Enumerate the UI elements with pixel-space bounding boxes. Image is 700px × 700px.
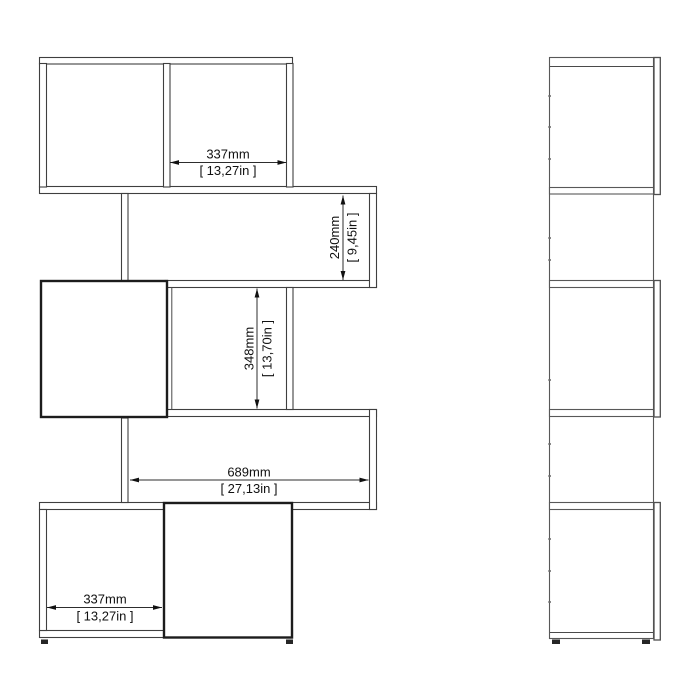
side-elevation-view — [548, 58, 660, 645]
dim-label-689-in: [ 27,13in ] — [220, 481, 277, 496]
front-left-foot — [41, 640, 48, 645]
side-shelf-4 — [550, 503, 654, 510]
dim-lower-opening-width: 689mm [ 27,13in ] — [130, 465, 369, 497]
front-shelf-2 — [165, 281, 377, 288]
side-shelf-3 — [550, 410, 654, 417]
dim-label-348-mm: 348mm — [242, 327, 257, 370]
dim-label-bottom-in: [ 13,27in ] — [76, 609, 133, 624]
drawing-svg: 337mm [ 13,27in ] 240mm [ 9,45in ] 348mm… — [0, 0, 700, 700]
front-shelf-3 — [165, 410, 377, 417]
front-band2-right-wall — [370, 194, 377, 288]
front-top-divider — [164, 64, 171, 188]
front-band2-left-wall — [122, 194, 129, 282]
front-middle-door — [41, 281, 167, 417]
dim-top-compartment-width: 337mm [ 13,27in ] — [170, 147, 287, 179]
dim-upper-opening-height: 240mm [ 9,45in ] — [327, 196, 360, 281]
side-shelf-2 — [550, 281, 654, 288]
side-top-door-edge — [654, 58, 660, 195]
front-band4-right-wall — [370, 410, 377, 510]
dim-label-240-mm: 240mm — [327, 216, 342, 259]
side-front-foot — [552, 640, 560, 645]
dim-label-top-mm: 337mm — [206, 147, 249, 162]
side-back-foot — [642, 640, 650, 645]
front-elevation-view — [40, 58, 377, 645]
dim-label-240-in: [ 9,45in ] — [345, 213, 360, 263]
front-band3-divider — [287, 288, 294, 410]
dim-label-top-in: [ 13,27in ] — [199, 163, 256, 178]
side-bottom-door-edge — [654, 503, 660, 641]
front-top-right-wall — [287, 64, 294, 188]
technical-drawing-canvas: 337mm [ 13,27in ] 240mm [ 9,45in ] 348mm… — [0, 0, 700, 700]
side-body-outline — [550, 58, 654, 639]
dim-label-bottom-mm: 337mm — [83, 592, 126, 607]
side-middle-door-edge — [654, 281, 660, 418]
front-top-left-wall — [40, 64, 47, 188]
front-bottom-left-wall — [40, 510, 47, 631]
front-band4-left-wall — [122, 418, 129, 503]
front-bottom-door — [164, 503, 292, 638]
side-shelf-1 — [550, 188, 654, 195]
dim-label-689-mm: 689mm — [227, 465, 270, 480]
front-shelf-1 — [40, 187, 377, 194]
front-right-foot — [286, 640, 293, 645]
dim-bottom-compartment-width: 337mm [ 13,27in ] — [47, 592, 162, 624]
dim-label-348-in: [ 13,70in ] — [260, 320, 275, 377]
dim-middle-opening-height: 348mm [ 13,70in ] — [242, 289, 275, 409]
